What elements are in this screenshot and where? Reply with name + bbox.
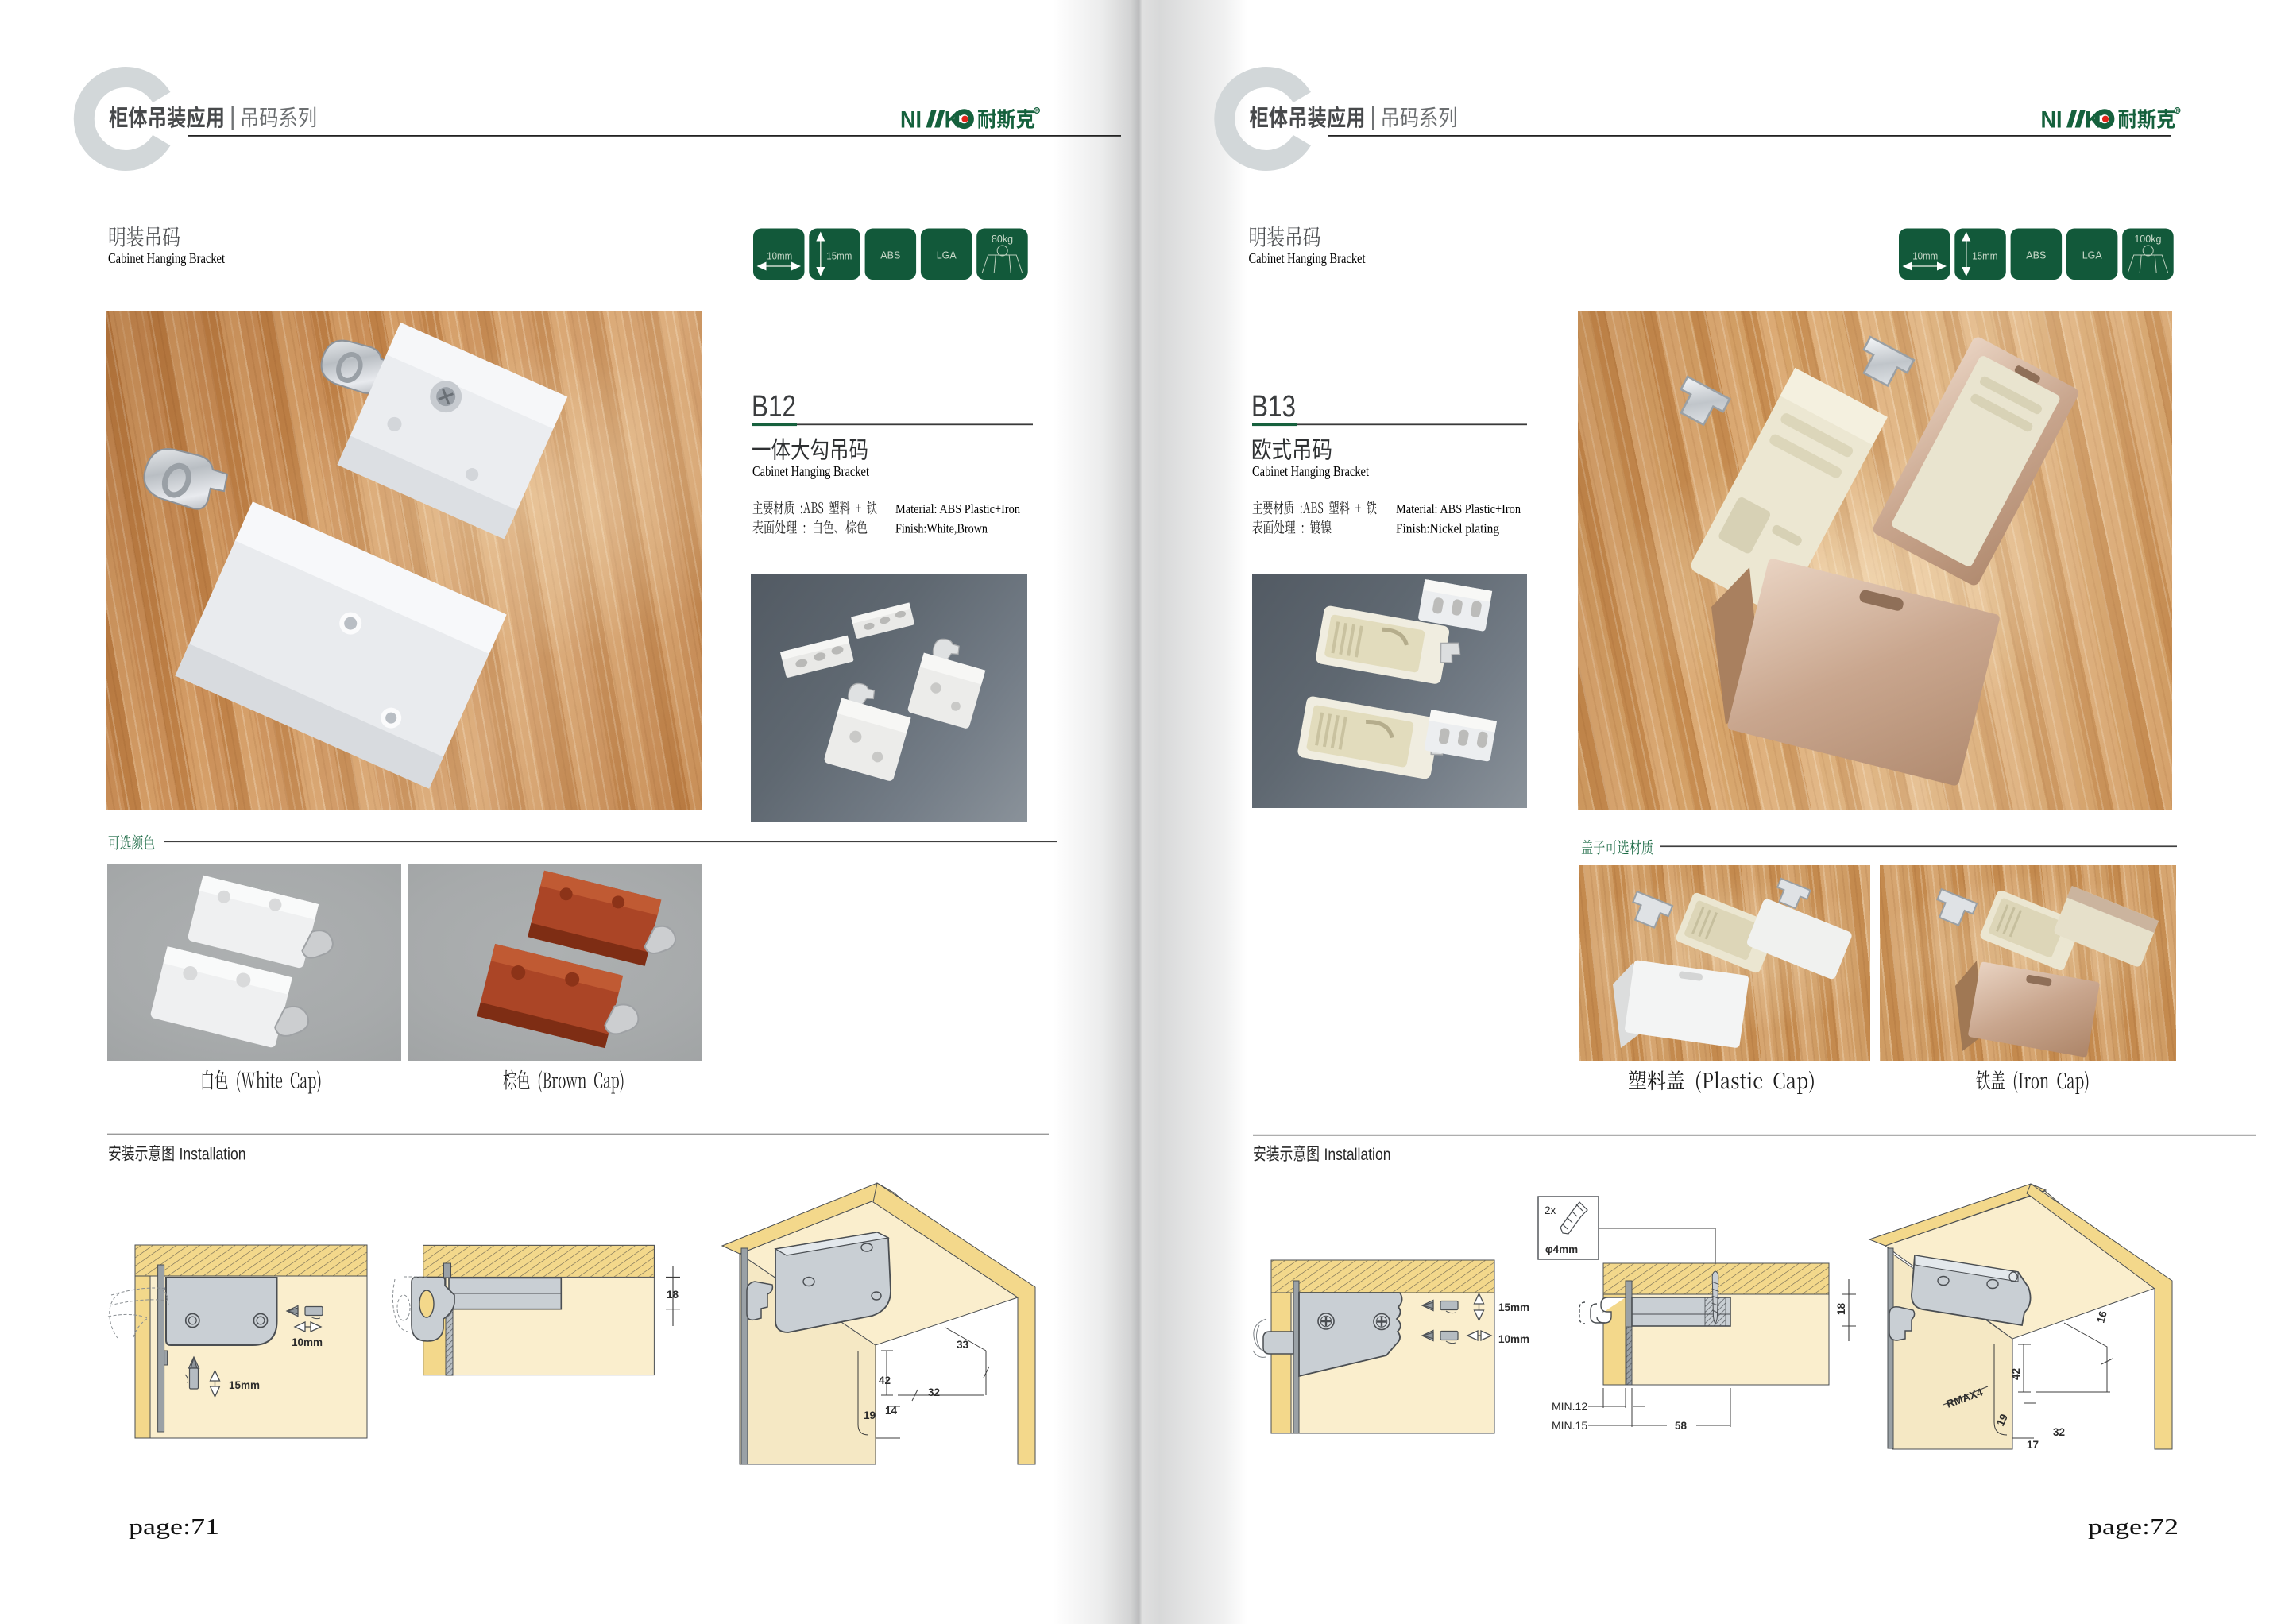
svg-text:NI: NI	[900, 107, 922, 133]
svg-text:42: 42	[2010, 1368, 2022, 1380]
svg-text:R: R	[1035, 109, 1039, 114]
svg-text:Installation: Installation	[1324, 1145, 1391, 1164]
svg-text:15mm: 15mm	[229, 1379, 260, 1391]
svg-text:100kg: 100kg	[2134, 234, 2161, 245]
svg-text:Material: ABS Plastic+Iron: Material: ABS Plastic+Iron	[895, 501, 1020, 516]
svg-text:Finish:Nickel plating: Finish:Nickel plating	[1396, 521, 1499, 536]
svg-text:10mm: 10mm	[292, 1336, 323, 1348]
svg-text:10mm: 10mm	[1912, 251, 1938, 262]
svg-text:15mm: 15mm	[1498, 1301, 1529, 1313]
svg-text:B12: B12	[752, 390, 796, 423]
svg-text:ABS: ABS	[2026, 250, 2046, 261]
svg-text:LGA: LGA	[937, 250, 957, 261]
svg-text:φ4mm: φ4mm	[1545, 1243, 1578, 1255]
svg-text:Cabinet Hanging Bracket: Cabinet Hanging Bracket	[752, 463, 869, 479]
svg-text:Cabinet Hanging Bracket: Cabinet Hanging Bracket	[108, 250, 225, 266]
svg-text:ABS: ABS	[880, 250, 900, 261]
svg-text:17: 17	[2027, 1439, 2039, 1451]
svg-text:16: 16	[2094, 1309, 2109, 1324]
svg-text:10mm: 10mm	[1498, 1333, 1529, 1345]
svg-text:58: 58	[1675, 1420, 1688, 1432]
svg-text:18: 18	[667, 1289, 679, 1301]
svg-text:Finish:White,Brown: Finish:White,Brown	[895, 521, 988, 536]
svg-text:page:72: page:72	[2088, 1514, 2179, 1540]
svg-text:R: R	[2176, 109, 2180, 114]
svg-text:Installation: Installation	[180, 1145, 246, 1164]
svg-text:42: 42	[879, 1375, 891, 1386]
svg-text:2x: 2x	[1545, 1204, 1556, 1216]
svg-text:15mm: 15mm	[1972, 251, 1997, 262]
svg-text:B13: B13	[1251, 390, 1296, 423]
svg-text:18: 18	[1835, 1302, 1847, 1315]
svg-text:80kg: 80kg	[992, 234, 1013, 245]
svg-text:page:71: page:71	[129, 1514, 219, 1540]
svg-text:NI: NI	[2041, 107, 2063, 133]
svg-text:Material: ABS Plastic+Iron: Material: ABS Plastic+Iron	[1396, 501, 1521, 516]
svg-text:LGA: LGA	[2082, 250, 2103, 261]
svg-text:MIN.15: MIN.15	[1552, 1419, 1587, 1432]
svg-text:19: 19	[864, 1409, 876, 1421]
svg-text:Cabinet Hanging Bracket: Cabinet Hanging Bracket	[1252, 463, 1369, 479]
svg-text:15mm: 15mm	[826, 251, 852, 262]
svg-text:10mm: 10mm	[767, 251, 792, 262]
svg-text:32: 32	[2053, 1426, 2065, 1438]
svg-text:14: 14	[885, 1405, 898, 1417]
svg-text:32: 32	[928, 1386, 940, 1398]
svg-text:MIN.12: MIN.12	[1552, 1400, 1587, 1413]
svg-text:Cabinet Hanging Bracket: Cabinet Hanging Bracket	[1249, 250, 1366, 266]
svg-text:33: 33	[957, 1339, 969, 1351]
